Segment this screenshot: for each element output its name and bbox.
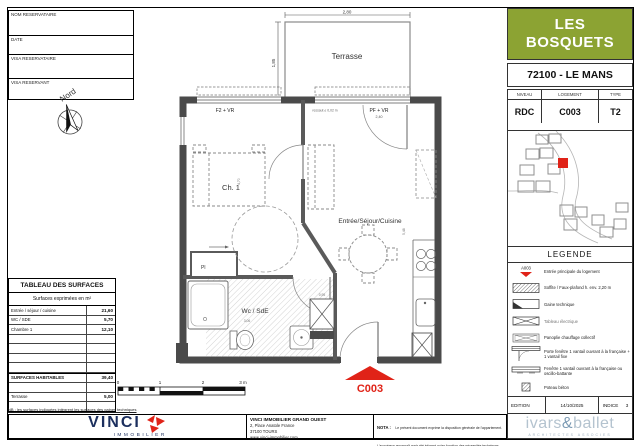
site-plan: [507, 130, 633, 247]
entry-arrow-icon: A003: [508, 264, 544, 278]
legend-entry-tag: A003: [521, 266, 531, 271]
address-line2: 37100 TOURS: [250, 429, 370, 434]
heating-panel-icon: [508, 331, 544, 345]
vinci-sublabel: IMMOBILIER: [88, 433, 167, 438]
table-row-empty: [9, 354, 115, 364]
unit-header-type: TYPE: [599, 90, 632, 100]
north-compass-icon: Nord: [44, 88, 96, 144]
table-row-empty: [9, 344, 115, 354]
form-field-label: NOM RESERVATAIRE: [11, 12, 56, 17]
legend-label: Porte fenêtre 1 vantail ouvrant à la fra…: [544, 349, 632, 359]
dim-terrasse-width: 2,80: [343, 10, 352, 15]
vinci-wordmark: VINCI: [88, 415, 141, 431]
table-row: Chambre 112,10: [9, 325, 115, 335]
terrasse: Terrasse 2,80 1,85: [271, 10, 410, 101]
entry-arrow-icon: [345, 366, 395, 380]
row-value: 5,70: [86, 316, 115, 325]
dim-pf-width: 2,40: [376, 115, 383, 119]
vinci-address: VINCI IMMOBILIER GRAND OUEST 2, Place An…: [247, 415, 374, 438]
legend: A003 Entrée principale du logement Soffi…: [507, 262, 633, 397]
legend-item-soffit: Soffite / Faux-plafond h. env. 2,20 m: [508, 280, 632, 297]
dim-sejour: 5,48: [402, 228, 406, 235]
site-highlight-marker: [558, 158, 568, 168]
project-title: LES BOSQUETS: [507, 8, 633, 60]
legend-label: Fenêtre 1 vantail ouvrant à la française…: [544, 366, 632, 376]
placard-label: Pl: [201, 265, 205, 271]
nota-text: Le présent document exprime la dispositi…: [377, 426, 502, 446]
website-url: www.vinci-immobilier.com: [250, 435, 370, 440]
footer: NB : les surfaces indiquées intègrent le…: [8, 407, 507, 438]
architect-name-right: ballet: [573, 415, 614, 432]
dim-gaine: 0,95: [319, 293, 326, 297]
footer-note: NB : les surfaces indiquées intègrent le…: [8, 407, 507, 414]
nota-label: NOTA :: [377, 425, 391, 430]
dim-sde: 3,06: [244, 319, 251, 323]
table-row: Entrée / séjour / cuisine21,60: [9, 306, 115, 316]
floor-plan: Terrasse 2,80 1,85 F2 + VR: [113, 7, 505, 407]
shower: [188, 281, 228, 329]
legend-item-french-door: Porte fenêtre 1 vantail ouvrant à la fra…: [508, 346, 632, 363]
legend-label: Soffite / Faux-plafond h. env. 2,20 m: [544, 285, 632, 290]
post-icon: [508, 381, 544, 393]
legend-label: Gaine technique: [544, 302, 632, 307]
scale-2: 2: [202, 380, 205, 385]
legend-item-entry: A003 Entrée principale du logement: [508, 263, 632, 280]
wall-pilaster: [176, 343, 188, 363]
legend-item-heating: Panoplie chauffage collectif: [508, 329, 632, 346]
legend-label: Entrée principale du logement: [544, 269, 632, 274]
unit-header-niveau: NIVEAU: [508, 90, 542, 100]
total-value: 39,40: [86, 374, 115, 383]
row-value: 5,00: [86, 393, 115, 402]
unit-header-logement: LOGEMENT: [542, 90, 599, 100]
row-label: Chambre 1: [9, 327, 86, 332]
site-plan-map: [508, 131, 632, 246]
legend-label: Tableau électrique: [544, 319, 632, 324]
north-label: Nord: [58, 88, 77, 104]
electrical-panel-icon: [508, 314, 544, 328]
row-value: 12,10: [86, 325, 115, 334]
project-line1: LES: [555, 16, 586, 33]
table-row: WC / SDE5,70: [9, 316, 115, 326]
unit-table: NIVEAU LOGEMENT TYPE RDC C003 T2: [507, 89, 633, 131]
nota-block: NOTA : Le présent document exprime la di…: [374, 415, 506, 438]
legend-item-window: Fenêtre 1 vantail ouvrant à la française…: [508, 363, 632, 380]
sde-label: Wc / SdE: [241, 308, 269, 315]
window-ch1: [179, 117, 187, 145]
edition-label: EDITION: [508, 403, 545, 408]
toilet: [230, 331, 254, 350]
row-value: 21,60: [86, 306, 115, 315]
indice-label: INDICE: [603, 403, 619, 408]
unit-value-niveau: RDC: [508, 100, 542, 123]
plan-sheet: NOM RESERVATAIRE DATE VISA RESERVATAIRE …: [0, 0, 640, 446]
dim-terrasse-depth: 1,85: [271, 58, 276, 67]
vinci-mark-icon: [145, 415, 167, 433]
table-row-empty: [9, 335, 115, 345]
window-icon: [508, 364, 544, 378]
scale-bar: 0 1 2 3 m: [117, 380, 247, 395]
surfaces-subtitle: Surfaces exprimées en m²: [9, 293, 115, 306]
table-row-empty: [9, 363, 115, 373]
table-row-empty: [9, 383, 115, 393]
unit-value-logement: C003: [542, 100, 599, 123]
vinci-logo: VINCI IMMOBILIER: [9, 415, 247, 438]
threshold-note: ressaut ≤ 0,02 m: [312, 109, 337, 113]
total-label: SURFACES HABITABLES: [9, 375, 86, 380]
row-label: WC / SDE: [9, 317, 86, 322]
terrasse-row: Terrasse5,00: [9, 393, 115, 403]
entry-marker: C003: [345, 366, 395, 395]
entry-label: C003: [357, 383, 383, 395]
duct-icon: [508, 297, 544, 311]
legend-item-electrical: Tableau électrique: [508, 313, 632, 330]
unit-value-type: T2: [599, 100, 632, 123]
project-line2: BOSQUETS: [526, 34, 614, 51]
surfaces-table: TABLEAU DES SURFACES Surfaces exprimées …: [8, 278, 116, 412]
soffit-hatch-icon: [508, 281, 544, 295]
sejour-label: Entrée/Séjour/Cuisine: [338, 218, 402, 225]
architect-tagline: ARCHITECTES ASSOCIES: [528, 433, 611, 437]
title-block-column: LES BOSQUETS 72100 - LE MANS NIVEAU LOGE…: [507, 7, 633, 438]
form-field-label: VISA RESERVATAIRE: [11, 56, 56, 61]
architect-ampersand: &: [562, 415, 573, 432]
form-field-label: VISA RESERVANT: [11, 80, 49, 85]
legend-item-duct: Gaine technique: [508, 296, 632, 313]
washbasin: [290, 326, 313, 349]
row-label: Entrée / séjour / cuisine: [9, 308, 86, 313]
legend-item-post: Poteau béton: [508, 379, 632, 396]
indice-value: 3: [626, 403, 629, 408]
scale-1: 1: [159, 380, 162, 385]
terrasse-label: Terrasse: [332, 52, 363, 61]
surfaces-title: TABLEAU DES SURFACES: [9, 279, 115, 293]
row-label: Terrasse: [9, 394, 86, 399]
architect-logo: ivars&ballet ARCHITECTES ASSOCIES: [507, 413, 633, 439]
legend-label: Panoplie chauffage collectif: [544, 335, 632, 340]
address-line1: 2, Place Anatole France: [250, 423, 370, 428]
dim-ch1: 4,70: [237, 178, 241, 185]
edition-date: 14/10/2025: [545, 397, 599, 413]
scale-3: 3 m: [239, 380, 247, 385]
edition-row: EDITION 14/10/2025 INDICE 3: [507, 396, 633, 414]
scale-0: 0: [117, 380, 120, 385]
architect-name-left: ivars: [526, 415, 562, 432]
form-field-label: DATE: [11, 37, 23, 42]
legend-label: Poteau béton: [544, 385, 632, 390]
technical-duct: [310, 299, 334, 339]
legend-title: LEGENDE: [507, 246, 633, 263]
city-label: 72100 - LE MANS: [507, 63, 633, 87]
office-name: VINCI IMMOBILIER GRAND OUEST: [250, 417, 370, 422]
window-left-label: F2 + VR: [216, 108, 235, 114]
french-door-icon: [508, 345, 544, 363]
window-right-label: PF + VR: [369, 108, 388, 114]
surfaces-total-row: SURFACES HABITABLES39,40: [9, 373, 115, 384]
